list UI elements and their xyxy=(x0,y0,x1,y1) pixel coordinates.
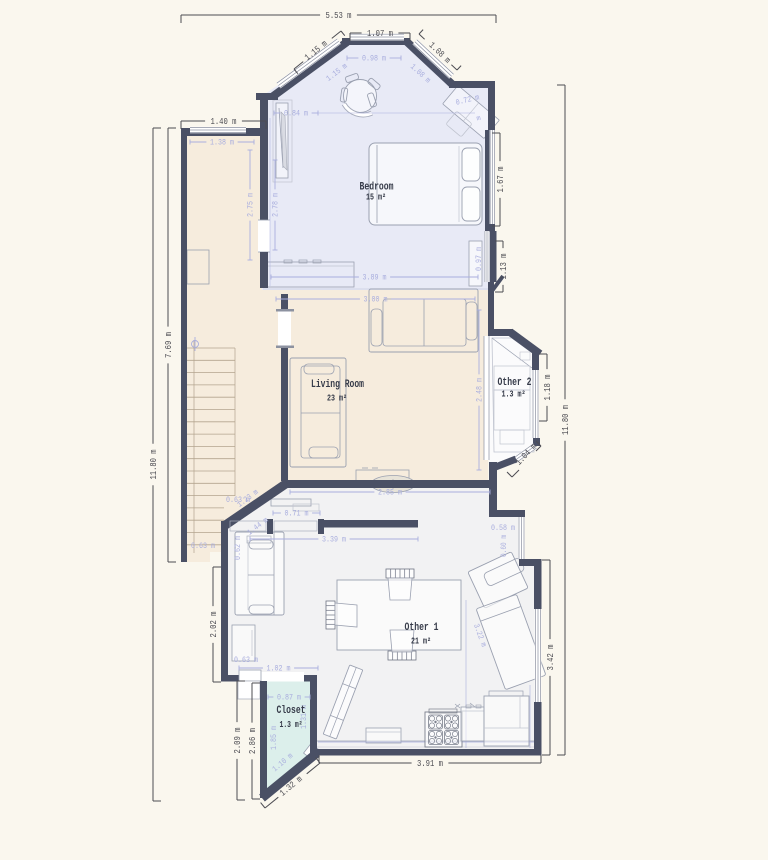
svg-text:1.02 m: 1.02 m xyxy=(267,665,291,674)
svg-text:2.48 m: 2.48 m xyxy=(476,378,485,402)
svg-text:15 m²: 15 m² xyxy=(366,193,386,203)
svg-text:0.60 m: 0.60 m xyxy=(500,535,509,557)
svg-text:3.89 m: 3.89 m xyxy=(363,274,387,283)
svg-text:3.91 m: 3.91 m xyxy=(417,759,443,769)
svg-text:1.3 m²: 1.3 m² xyxy=(502,390,526,400)
svg-text:1.18 m: 1.18 m xyxy=(543,375,553,401)
svg-text:0.63 m: 0.63 m xyxy=(226,496,250,505)
svg-text:1.67 m: 1.67 m xyxy=(496,167,506,193)
svg-text:21 m²: 21 m² xyxy=(411,637,431,647)
svg-text:0.84 m: 0.84 m xyxy=(284,110,308,119)
svg-text:23 m²: 23 m² xyxy=(327,394,347,404)
svg-text:0.62 m: 0.62 m xyxy=(234,536,243,560)
svg-text:3.42 m: 3.42 m xyxy=(546,645,556,671)
svg-text:0.71 m: 0.71 m xyxy=(285,510,309,519)
svg-text:2.02 m: 2.02 m xyxy=(209,612,219,638)
svg-text:1.85 m: 1.85 m xyxy=(270,726,279,750)
svg-text:2.75 m: 2.75 m xyxy=(247,193,256,217)
svg-text:1.40 m: 1.40 m xyxy=(211,117,237,127)
svg-text:0.98 m: 0.98 m xyxy=(362,55,386,64)
svg-text:5.53 m: 5.53 m xyxy=(326,11,352,21)
svg-text:Other 2: Other 2 xyxy=(498,377,532,389)
svg-text:Other 1: Other 1 xyxy=(405,622,439,634)
svg-text:2.86 m: 2.86 m xyxy=(248,728,258,754)
svg-text:2.09 m: 2.09 m xyxy=(233,728,243,754)
svg-text:0.58 m: 0.58 m xyxy=(491,524,515,533)
svg-text:11.80 m: 11.80 m xyxy=(561,405,571,435)
svg-text:7.69 m: 7.69 m xyxy=(164,332,174,358)
svg-text:2.78 m: 2.78 m xyxy=(272,193,281,217)
svg-text:0.97 m: 0.97 m xyxy=(475,247,484,271)
svg-text:3.00 m: 3.00 m xyxy=(364,296,388,305)
svg-text:2.85 m: 2.85 m xyxy=(378,489,402,498)
svg-text:0.87 m: 0.87 m xyxy=(277,694,301,703)
svg-text:1.07 m: 1.07 m xyxy=(367,29,393,39)
svg-text:1.13 m: 1.13 m xyxy=(499,254,509,280)
svg-text:1.3 m²: 1.3 m² xyxy=(280,720,303,730)
svg-text:0.63 m: 0.63 m xyxy=(234,656,258,665)
svg-text:Living Room: Living Room xyxy=(311,379,364,391)
svg-text:0.63 m: 0.63 m xyxy=(191,542,215,551)
svg-text:Closet: Closet xyxy=(277,705,306,717)
svg-text:3.39 m: 3.39 m xyxy=(322,536,346,545)
svg-text:1.38 m: 1.38 m xyxy=(210,139,234,148)
svg-text:11.80 m: 11.80 m xyxy=(149,450,159,480)
